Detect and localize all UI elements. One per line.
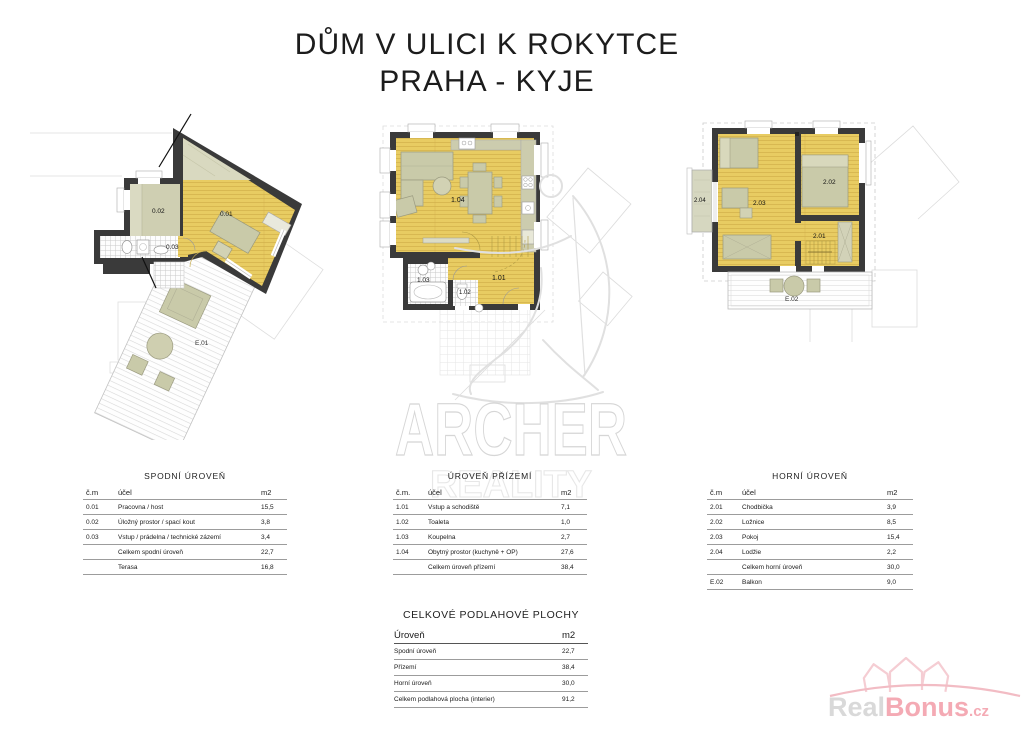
- exterior-stairs: [154, 262, 184, 288]
- table-cell: E.02: [707, 579, 742, 586]
- logo-text-cz: .cz: [969, 703, 989, 720]
- closet-2-01: [838, 222, 852, 262]
- header-cell: účel: [118, 488, 261, 497]
- table-header-row: č.m. účel m2: [393, 486, 587, 500]
- table-cell: Pokoj: [742, 534, 887, 541]
- table-cell: 27,6: [561, 549, 587, 556]
- room-label: 1.02: [459, 290, 471, 296]
- room-label: 1.03: [417, 277, 430, 284]
- table-cell: 9,0: [887, 579, 913, 586]
- table-cell: Celkem podlahová plocha (interier): [394, 696, 562, 703]
- vent-symbol: [475, 304, 483, 312]
- header-cell: m2: [561, 488, 587, 497]
- balcony-table: [784, 276, 804, 296]
- table-cell: 0.03: [83, 534, 118, 541]
- page-title: DŮM V ULICI K ROKYTCE PRAHA - KYJE: [187, 26, 787, 100]
- table-cell: Vstup / prádelna / technické zázemí: [118, 534, 261, 541]
- table-cell: Pracovna / host: [118, 504, 261, 511]
- table-row: 2.01Chodbička3,9: [707, 500, 913, 515]
- table-row: 2.03Pokoj15,4: [707, 530, 913, 545]
- table-cell: 15,5: [261, 504, 287, 511]
- balcony-chair: [807, 279, 820, 292]
- table-cell: 3,4: [261, 534, 287, 541]
- kitchen-sink-icon: [522, 202, 534, 214]
- table-cell: 38,4: [561, 564, 587, 571]
- table-cell: Koupelna: [428, 534, 561, 541]
- room-label: 0.02: [152, 208, 165, 215]
- table-row: 0.02Úložný prostor / spací kout3,8: [83, 515, 287, 530]
- table-cell: 16,8: [261, 564, 287, 571]
- table-row: Horní úroveň30,0: [394, 676, 588, 692]
- table-row: Celkem úroveň přízemí38,4: [393, 560, 587, 575]
- header-cell: č.m.: [393, 488, 428, 497]
- table-cell: Celkem spodní úroveň: [118, 549, 261, 556]
- table-row: 2.02Ložnice8,5: [707, 515, 913, 530]
- table-cell: Obytný prostor (kuchyně + OP): [428, 549, 561, 556]
- header-cell: m2: [887, 488, 913, 497]
- table-row: Celkem spodní úroveň22,7: [83, 545, 287, 560]
- table-cell: 7,1: [561, 504, 587, 511]
- header-cell: m2: [562, 630, 588, 641]
- table-cell: 3,9: [887, 504, 913, 511]
- table-header-row: č.m účel m2: [83, 486, 287, 500]
- table-cell: 22,7: [562, 648, 588, 655]
- room-label: 0.03: [166, 244, 179, 251]
- washbasin: [418, 265, 428, 275]
- table-cell: 2.03: [707, 534, 742, 541]
- table-row: Spodní úroveň22,7: [394, 644, 588, 660]
- coffee-table: [433, 177, 451, 195]
- cooktop-icon: [522, 176, 534, 189]
- room-0-02-bed: [130, 184, 142, 236]
- washer-fixture: [137, 240, 149, 254]
- table-cell: 2,7: [561, 534, 587, 541]
- header-cell: č.m: [83, 488, 118, 497]
- table-cell: 1.02: [393, 519, 428, 526]
- room-label: 2.01: [813, 233, 826, 240]
- table-cell: 15,4: [887, 534, 913, 541]
- header-cell: účel: [428, 488, 561, 497]
- room-label: 2.02: [823, 179, 836, 186]
- table-ground-floor: ÚROVEŇ PŘÍZEMÍ č.m. účel m2 1.01Vstup a …: [393, 471, 587, 575]
- table-cell: 1.03: [393, 534, 428, 541]
- table-cell: 30,0: [887, 564, 913, 571]
- table-title: CELKOVÉ PODLAHOVÉ PLOCHY: [394, 609, 588, 621]
- table-row: 0.01Pracovna / host15,5: [83, 500, 287, 515]
- table-row: Přízemí38,4: [394, 660, 588, 676]
- room-label: 2.03: [753, 200, 766, 207]
- room-label: 1.01: [492, 275, 506, 282]
- table-row: 1.03Koupelna2,7: [393, 530, 587, 545]
- table-upper-level: HORNÍ ÚROVEŇ č.m účel m2 2.01Chodbička3,…: [707, 471, 913, 590]
- table-row: Celkem podlahová plocha (interier)91,2: [394, 692, 588, 708]
- room-label: E.01: [195, 340, 209, 347]
- table-cell: 1,0: [561, 519, 587, 526]
- table-cell: 2.04: [707, 549, 742, 556]
- table-cell: 30,0: [562, 680, 588, 687]
- table-title: ÚROVEŇ PŘÍZEMÍ: [393, 471, 587, 481]
- table-row: Celkem horní úroveň30,0: [707, 560, 913, 575]
- table-title: HORNÍ ÚROVEŇ: [707, 471, 913, 481]
- table-lower-level: SPODNÍ ÚROVEŇ č.m účel m2 0.01Pracovna /…: [83, 471, 287, 575]
- bathtub: [410, 282, 446, 302]
- tv-bench: [423, 238, 469, 243]
- table-cell: Spodní úroveň: [394, 648, 562, 655]
- table-cell: 3,8: [261, 519, 287, 526]
- paving-grid: [440, 305, 530, 375]
- balcony: [728, 272, 872, 309]
- table-cell: 8,5: [887, 519, 913, 526]
- table-header-row: č.m účel m2: [707, 486, 913, 500]
- table-cell: 1.04: [393, 549, 428, 556]
- header-cell: Úroveň: [394, 630, 562, 641]
- room-label: E.02: [785, 296, 799, 303]
- table-cell: 2,2: [887, 549, 913, 556]
- logo-text-real: Real: [828, 692, 885, 722]
- table-header-row: Úroveň m2: [394, 627, 588, 644]
- table-cell: Ložnice: [742, 519, 887, 526]
- table-cell: 22,7: [261, 549, 287, 556]
- header-cell: m2: [261, 488, 287, 497]
- table-cell: 91,2: [562, 696, 588, 703]
- table-cell: 0.02: [83, 519, 118, 526]
- cistern: [457, 284, 467, 288]
- table-cell: Terasa: [118, 564, 261, 571]
- vent-symbol: [427, 262, 435, 270]
- table-cell: Vstup a schodiště: [428, 504, 561, 511]
- table-cell: Balkon: [742, 579, 887, 586]
- table-cell: 38,4: [562, 664, 588, 671]
- balcony-chair: [770, 279, 783, 292]
- room-label: 1.04: [451, 197, 465, 204]
- table-row: E.02Balkon9,0: [707, 575, 913, 590]
- stove-icon: [459, 138, 475, 149]
- bed-2-03: [720, 138, 758, 168]
- floor-plan-upper: 2.03 2.02 2.01 2.04 E.02: [685, 120, 985, 355]
- logo-text-bonus: Bonus: [885, 692, 969, 722]
- floor-plan-lower: 0.01 0.02 0.03 E.01: [30, 110, 330, 440]
- table-cell: 2.01: [707, 504, 742, 511]
- logo-wordmark: RealBonus.cz: [828, 692, 989, 722]
- table-row: 0.03Vstup / prádelna / technické zázemí3…: [83, 530, 287, 545]
- realbonus-logo: RealBonus.cz: [828, 648, 1024, 728]
- staircase: [806, 241, 835, 264]
- table-cell: Chodbička: [742, 504, 887, 511]
- floor-plan-ground: 1.04 1.01 1.02 1.03: [375, 122, 635, 412]
- table-cell: 0.01: [83, 504, 118, 511]
- corridor-floor: [178, 236, 188, 257]
- table-row: Terasa16,8: [83, 560, 287, 575]
- table-cell: Horní úroveň: [394, 680, 562, 687]
- table-row: 1.01Vstup a schodiště7,1: [393, 500, 587, 515]
- table-row: 1.04Obytný prostor (kuchyně + OP)27,6: [393, 545, 587, 560]
- title-line-2: PRAHA - KYJE: [187, 63, 787, 100]
- table-title: SPODNÍ ÚROVEŇ: [83, 471, 287, 481]
- chimney-dot: [795, 132, 799, 136]
- table-cell: Přízemí: [394, 664, 562, 671]
- opening: [793, 223, 803, 241]
- toilet-fixture: [122, 241, 132, 254]
- room-label: 0.01: [220, 211, 233, 218]
- header-cell: č.m: [707, 488, 742, 497]
- table-total-areas: CELKOVÉ PODLAHOVÉ PLOCHY Úroveň m2 Spodn…: [394, 609, 588, 708]
- table-cell: Úložný prostor / spací kout: [118, 519, 261, 526]
- table-cell: Celkem horní úroveň: [742, 564, 887, 571]
- table-cell: 1.01: [393, 504, 428, 511]
- table-cell: 2.02: [707, 519, 742, 526]
- table-row: 2.04Lodžie2,2: [707, 545, 913, 560]
- floor-plan-sheet: DŮM V ULICI K ROKYTCE PRAHA - KYJE: [0, 0, 1024, 731]
- table-cell: Toaleta: [428, 519, 561, 526]
- table-cell: Celkem úroveň přízemí: [428, 564, 561, 571]
- wardrobe-2-03: [723, 235, 771, 259]
- table-cell: Lodžie: [742, 549, 887, 556]
- header-cell: účel: [742, 488, 887, 497]
- room-label: 2.04: [694, 198, 706, 204]
- table-row: 1.02Toaleta1,0: [393, 515, 587, 530]
- title-line-1: DŮM V ULICI K ROKYTCE: [187, 26, 787, 63]
